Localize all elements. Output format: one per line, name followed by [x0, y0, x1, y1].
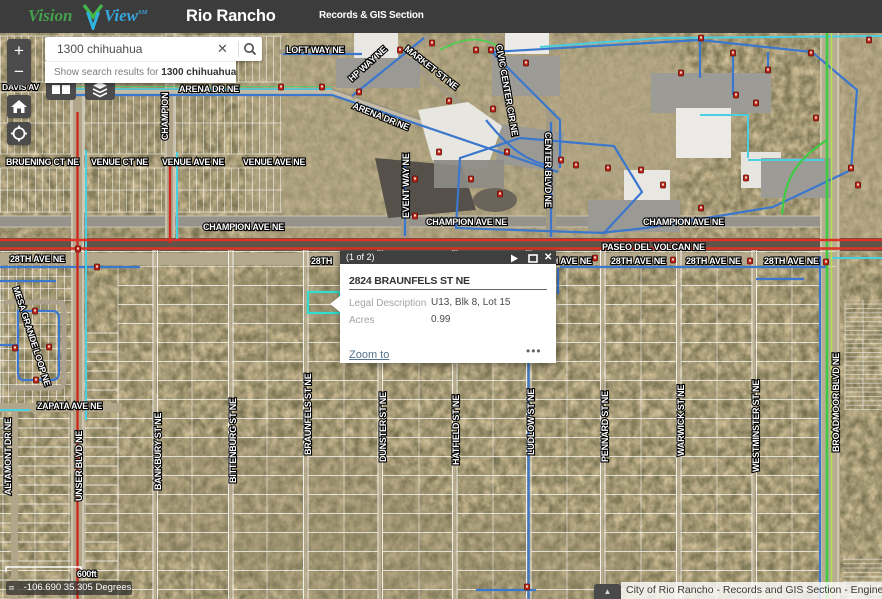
svg-text:VENUE CT NE: VENUE CT NE — [91, 157, 148, 167]
svg-text:CHAMPION AVE NE: CHAMPION AVE NE — [426, 217, 507, 227]
svg-text:CHAMPION: CHAMPION — [160, 93, 170, 140]
svg-text:PENNARD ST NE: PENNARD ST NE — [600, 391, 610, 462]
svg-text:LUDLOW ST NE: LUDLOW ST NE — [526, 389, 536, 455]
svg-text:WESTMINSTER ST NE: WESTMINSTER ST NE — [751, 380, 761, 472]
svg-text:WARWICK ST NE: WARWICK ST NE — [676, 385, 686, 456]
svg-text:CHAMPION AVE NE: CHAMPION AVE NE — [643, 217, 724, 227]
svg-text:ZAPATA AVE NE: ZAPATA AVE NE — [37, 401, 102, 411]
svg-text:ARENA DR NE: ARENA DR NE — [179, 84, 239, 94]
svg-text:VENUE AVE NE: VENUE AVE NE — [243, 157, 305, 167]
svg-text:DUNSTER ST NE: DUNSTER ST NE — [378, 392, 388, 462]
svg-text:BANKBURY ST NE: BANKBURY ST NE — [153, 413, 163, 490]
svg-text:28TH AVE NE: 28TH AVE NE — [10, 254, 65, 264]
svg-text:28TH AVE NE: 28TH AVE NE — [686, 256, 741, 266]
svg-text:LOFT WAY NE: LOFT WAY NE — [286, 45, 345, 55]
svg-text:28TH: 28TH — [311, 256, 332, 266]
svg-text:BROADMOOR BLVD NE: BROADMOOR BLVD NE — [831, 353, 841, 452]
svg-text:28TH AVE NE: 28TH AVE NE — [611, 256, 666, 266]
svg-text:CENTER BLVD NE: CENTER BLVD NE — [543, 132, 553, 208]
svg-text:HATFIELD ST NE: HATFIELD ST NE — [451, 395, 461, 465]
svg-text:VENUE AVE NE: VENUE AVE NE — [162, 157, 224, 167]
svg-text:BRUENING CT NE: BRUENING CT NE — [6, 157, 79, 167]
svg-text:UNSER BLVD NE: UNSER BLVD NE — [74, 431, 84, 501]
svg-text:EVENT WAY NE: EVENT WAY NE — [401, 153, 411, 218]
svg-text:BITTENBURG ST NE: BITTENBURG ST NE — [228, 398, 238, 483]
svg-text:BRAUNFELS ST NE: BRAUNFELS ST NE — [303, 373, 313, 455]
svg-text:28TH AVE NE: 28TH AVE NE — [764, 256, 819, 266]
svg-text:600ft: 600ft — [77, 569, 97, 579]
svg-text:CHAMPION AVE NE: CHAMPION AVE NE — [203, 222, 284, 232]
svg-text:ALTAMONT DR NE: ALTAMONT DR NE — [3, 418, 13, 495]
svg-text:PASEO DEL VOLCAN NE: PASEO DEL VOLCAN NE — [602, 242, 705, 252]
